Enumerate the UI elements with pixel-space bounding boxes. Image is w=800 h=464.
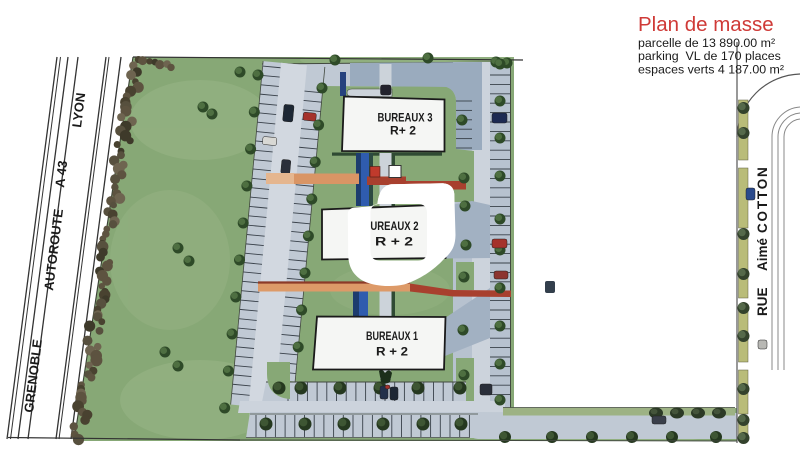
svg-text:GRENOBLE: GRENOBLE [21, 338, 45, 413]
svg-text:R + 2: R + 2 [376, 347, 408, 359]
svg-text:A 43: A 43 [52, 160, 70, 189]
svg-text:parking VL de 170 places: parking VL de 170 places [638, 49, 781, 63]
svg-text:BUREAUX 2: BUREAUX 2 [364, 221, 419, 233]
svg-text:COTTON: COTTON [755, 165, 770, 233]
svg-text:Aimé: Aimé [755, 237, 770, 271]
svg-text:BUREAUX 1: BUREAUX 1 [366, 331, 418, 343]
svg-text:RUE: RUE [755, 287, 770, 316]
svg-text:AUTOROUTE: AUTOROUTE [41, 208, 66, 292]
svg-text:R + 2: R + 2 [375, 237, 413, 249]
svg-text:LYON: LYON [69, 92, 88, 128]
svg-text:parcelle de 13 890.00 m²: parcelle de 13 890.00 m² [638, 36, 775, 50]
svg-text:R+ 2: R+ 2 [390, 126, 416, 138]
svg-text:BUREAUX 3: BUREAUX 3 [378, 113, 433, 125]
svg-text:espaces verts 4 187.00 m²: espaces verts 4 187.00 m² [638, 63, 784, 77]
svg-text:Plan de masse: Plan de masse [638, 13, 774, 36]
